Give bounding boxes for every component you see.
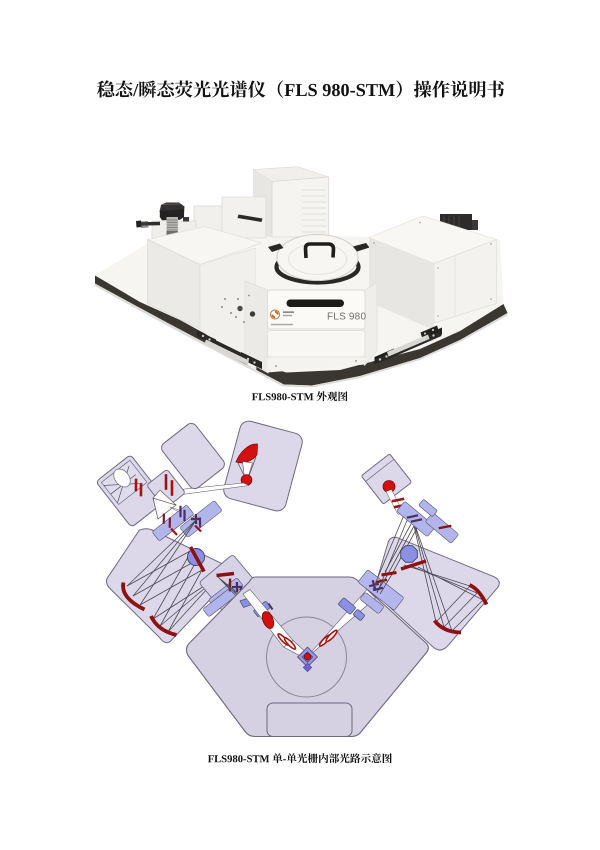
svg-text:FLS 980: FLS 980 [327, 311, 366, 322]
